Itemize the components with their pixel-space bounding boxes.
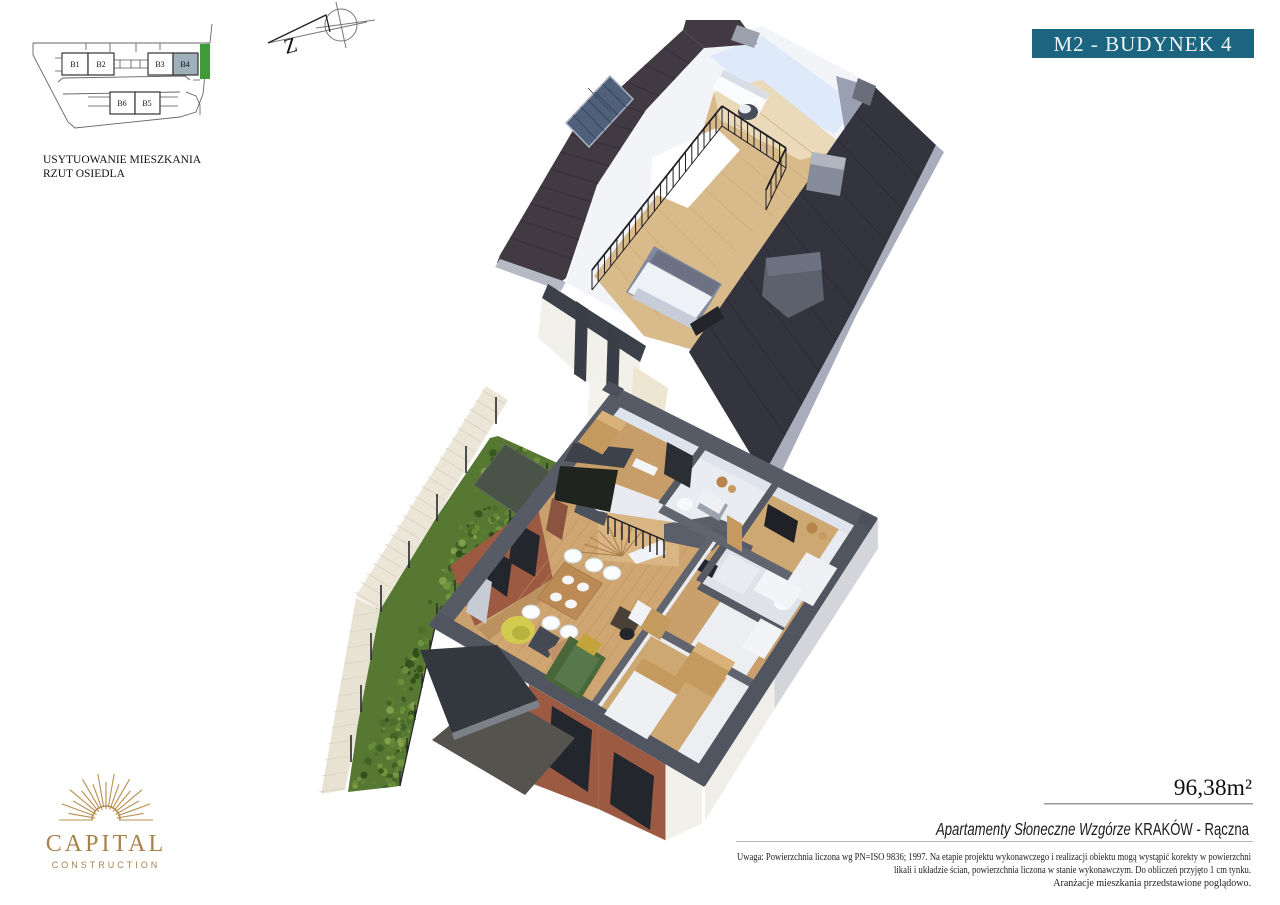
svg-text:Uwaga: Powierzchnia liczona wg: Uwaga: Powierzchnia liczona wg PN=ISO 98… bbox=[737, 852, 1251, 863]
svg-text:RZUT OSIEDLA: RZUT OSIEDLA bbox=[43, 168, 126, 180]
svg-text:B1: B1 bbox=[70, 60, 79, 69]
svg-text:B2: B2 bbox=[96, 60, 105, 69]
svg-text:CONSTRUCTION: CONSTRUCTION bbox=[52, 860, 161, 870]
svg-text:USYTUOWANIE MIESZKANIA: USYTUOWANIE MIESZKANIA bbox=[43, 154, 202, 166]
svg-text:Aranżacje mieszkania przedstaw: Aranżacje mieszkania przedstawione poglą… bbox=[1053, 878, 1251, 889]
svg-text:B6: B6 bbox=[117, 99, 126, 108]
svg-text:CAPITAL: CAPITAL bbox=[46, 831, 166, 857]
svg-text:B3: B3 bbox=[155, 60, 164, 69]
svg-text:M2 - BUDYNEK 4: M2 - BUDYNEK 4 bbox=[1053, 32, 1232, 56]
svg-text:96,38m²: 96,38m² bbox=[1174, 775, 1252, 801]
svg-text:likali i układzie ścian, powie: likali i układzie ścian, powierzchnia li… bbox=[894, 865, 1251, 876]
svg-text:B5: B5 bbox=[142, 99, 151, 108]
svg-text:Apartamenty Słoneczne Wzgórze: Apartamenty Słoneczne Wzgórze KRAKÓW - R… bbox=[935, 818, 1249, 839]
svg-text:B4: B4 bbox=[180, 60, 189, 69]
